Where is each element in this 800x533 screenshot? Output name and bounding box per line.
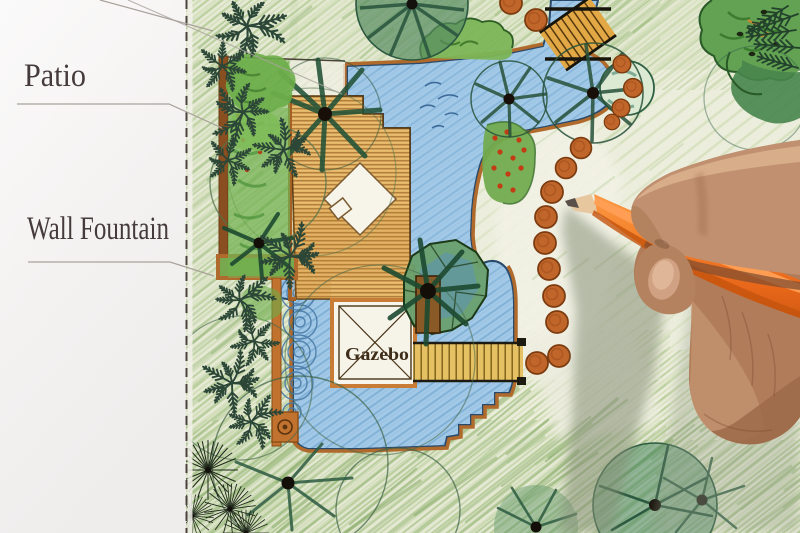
svg-text:Gazebo: Gazebo	[345, 344, 409, 364]
svg-text:Patio: Patio	[24, 58, 86, 94]
svg-text:Wall Fountain: Wall Fountain	[27, 211, 169, 247]
